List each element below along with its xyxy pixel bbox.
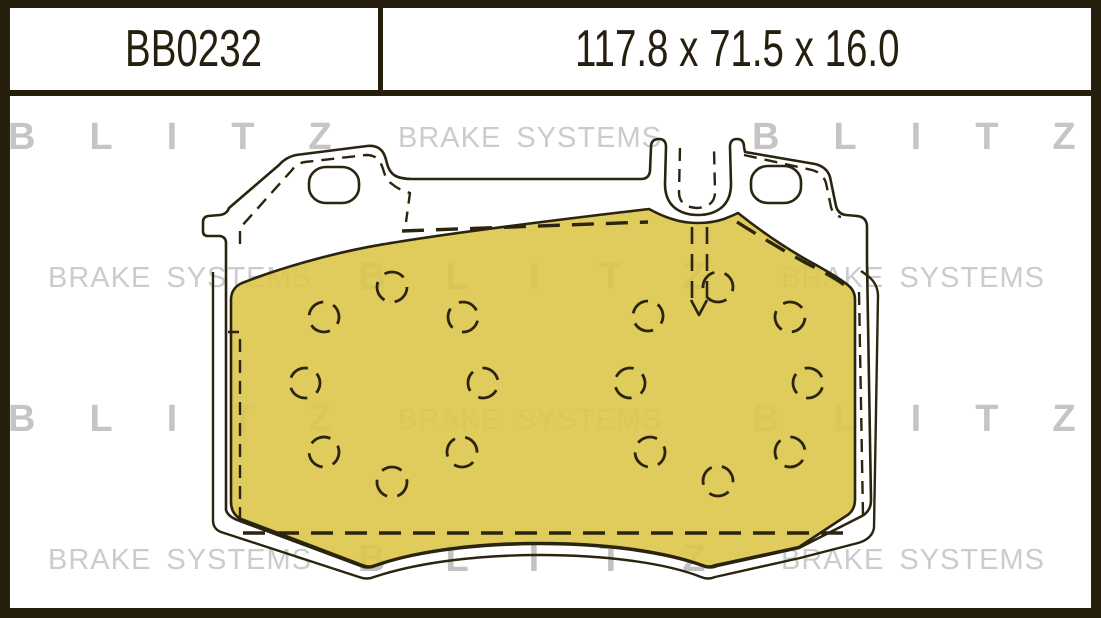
part-number: BB0232: [126, 19, 263, 79]
drawing-sheet: BB0232 117.8 x 71.5 x 16.0 BLITZBRAKE SY…: [0, 0, 1101, 618]
pad-dimensions: 117.8 x 71.5 x 16.0: [575, 19, 899, 79]
header-dimensions-cell: 117.8 x 71.5 x 16.0: [383, 8, 1091, 90]
header-part-number-cell: BB0232: [10, 8, 378, 90]
drawing-canvas: [10, 96, 1091, 608]
